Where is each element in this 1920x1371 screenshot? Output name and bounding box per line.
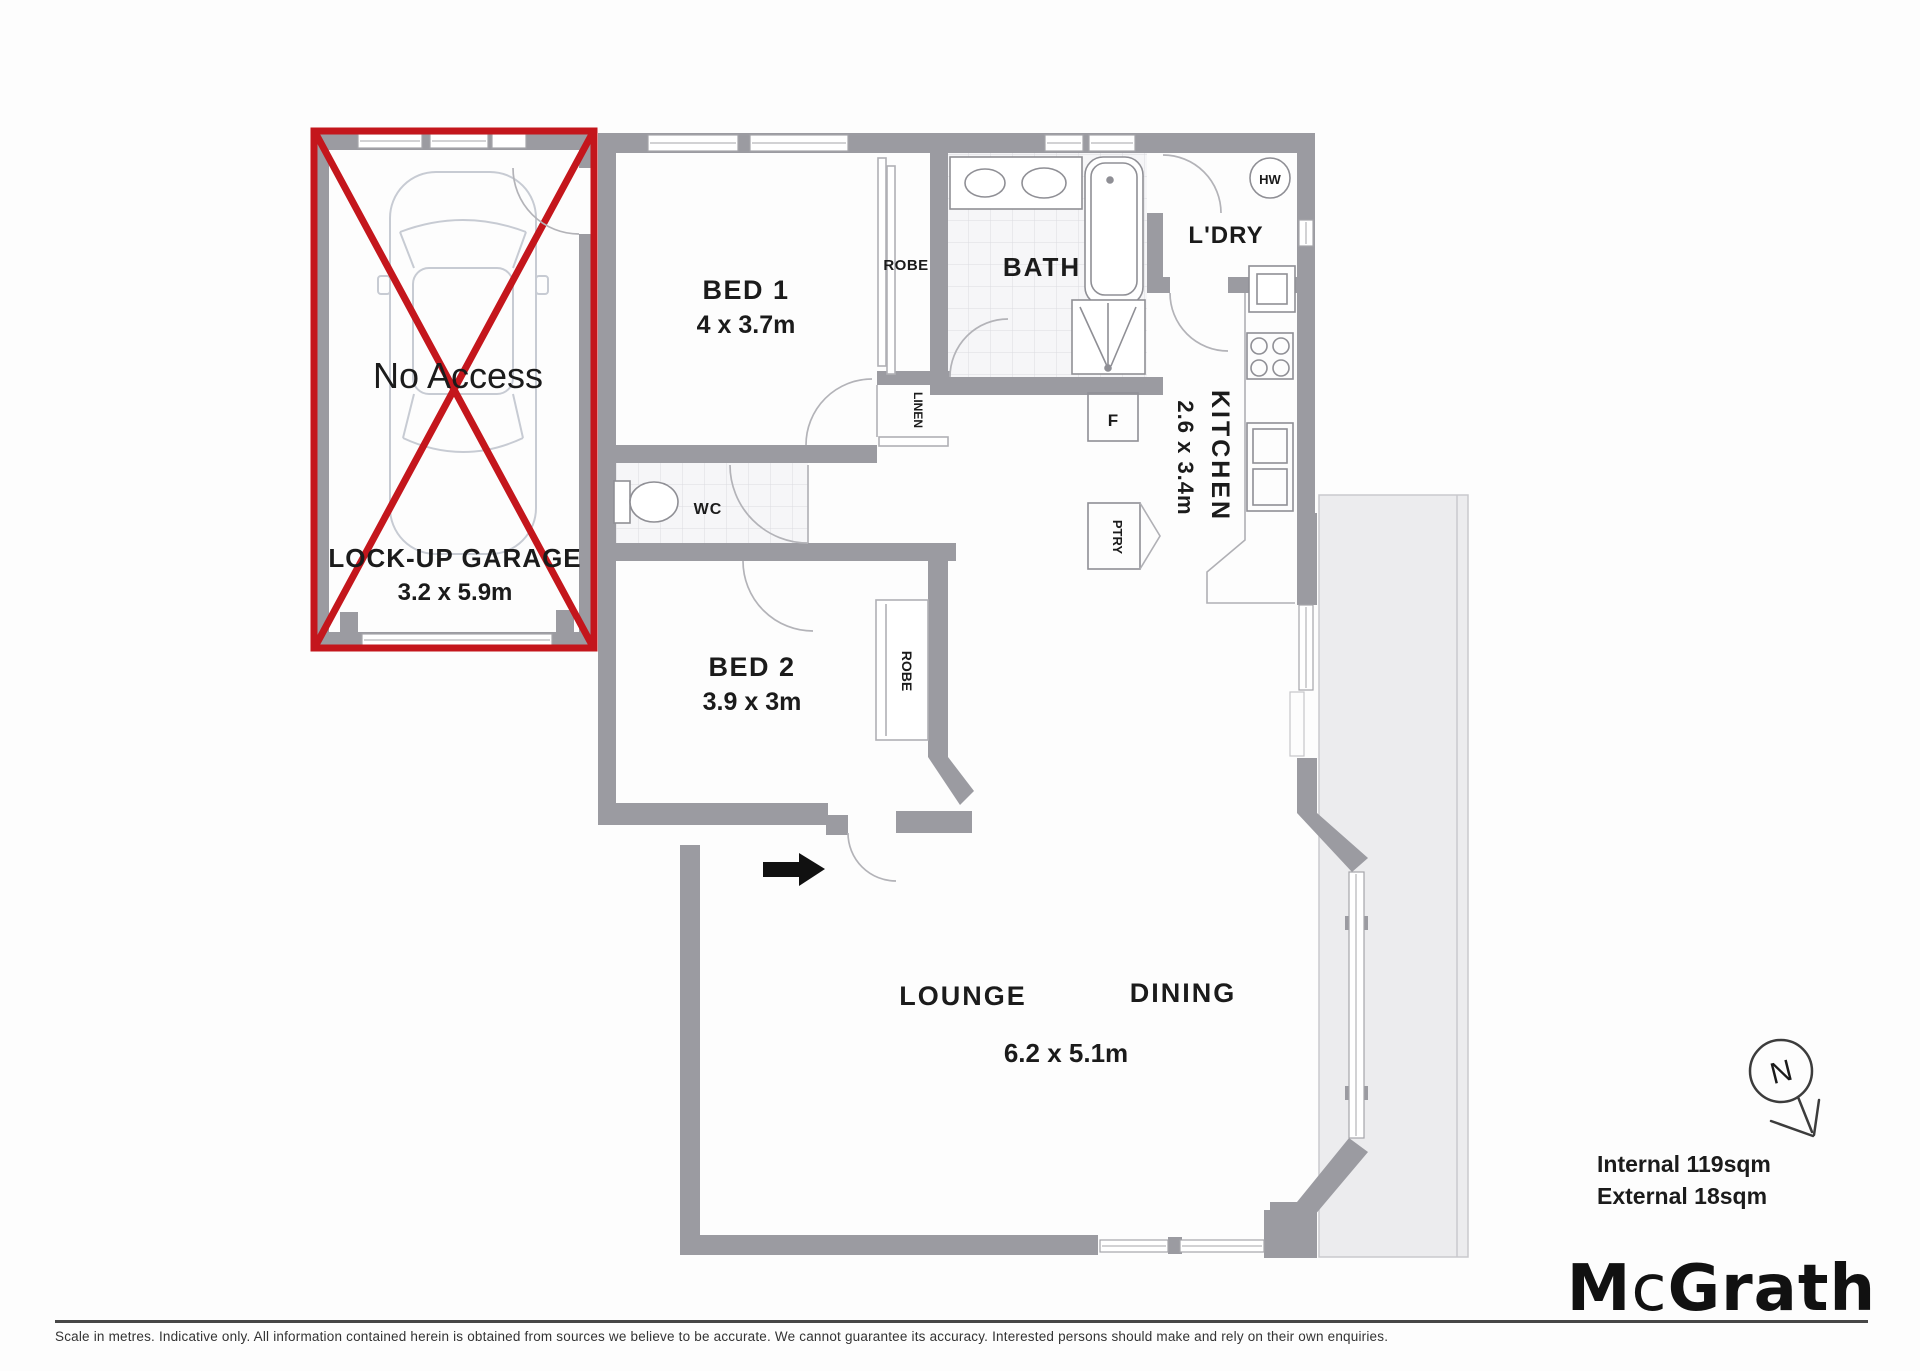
- logo-part-c: c: [1631, 1252, 1667, 1326]
- garage-name-label: LOCK-UP GARAGE: [328, 543, 581, 573]
- robe1-label: ROBE: [883, 257, 928, 274]
- pantry-label: PTRY: [1110, 520, 1125, 555]
- lounge-dining-dims-label: 6.2 x 5.1m: [1004, 1038, 1128, 1068]
- window-mullions: [360, 141, 1356, 1246]
- dining-name-label: DINING: [1130, 978, 1237, 1008]
- bed2-dims-label: 3.9 x 3m: [703, 688, 802, 716]
- floorplan-drawing: No Access LOCK-UP GARAGE 3.2 x 5.9m BED …: [0, 0, 1920, 1371]
- external-area-label: External 18sqm: [1597, 1183, 1767, 1209]
- logo-part-m: M: [1567, 1252, 1632, 1326]
- footer-disclaimer: Scale in metres. Indicative only. All in…: [55, 1329, 1845, 1344]
- garage-dims-label: 3.2 x 5.9m: [398, 579, 513, 606]
- bed2-name-label: BED 2: [708, 652, 795, 682]
- kitchen-dims-label: 2.6 x 3.4m: [1173, 400, 1198, 515]
- kitchen-name-label: KITCHEN: [1206, 390, 1234, 522]
- bath-name-label: BATH: [1003, 252, 1081, 282]
- robe2-label: ROBE: [899, 651, 915, 691]
- ldry-name-label: L'DRY: [1188, 222, 1263, 249]
- external-area: [1319, 495, 1468, 1257]
- internal-area-label: Internal 119sqm: [1597, 1151, 1771, 1177]
- logo-part-grath: Grath: [1668, 1252, 1876, 1326]
- walls: [313, 132, 1368, 1258]
- floorplan-page: No Access LOCK-UP GARAGE 3.2 x 5.9m BED …: [0, 0, 1920, 1371]
- compass-north-label: N: [1767, 1054, 1796, 1091]
- entry-arrow-icon: [763, 853, 825, 886]
- hot-water-label: HW: [1259, 172, 1281, 187]
- linen-label: LINEN: [911, 392, 925, 428]
- toilet-icon: [614, 481, 678, 523]
- wc-name-label: WC: [694, 501, 723, 518]
- lounge-name-label: LOUNGE: [899, 981, 1027, 1011]
- footer-divider: [55, 1320, 1868, 1323]
- fridge-label: F: [1108, 411, 1118, 430]
- mcgrath-logo: McGrath: [1567, 1252, 1876, 1326]
- garage-no-access-label: No Access: [373, 355, 543, 396]
- windows: [358, 134, 1364, 1252]
- bed1-name-label: BED 1: [702, 275, 789, 305]
- bed1-dims-label: 4 x 3.7m: [697, 311, 796, 339]
